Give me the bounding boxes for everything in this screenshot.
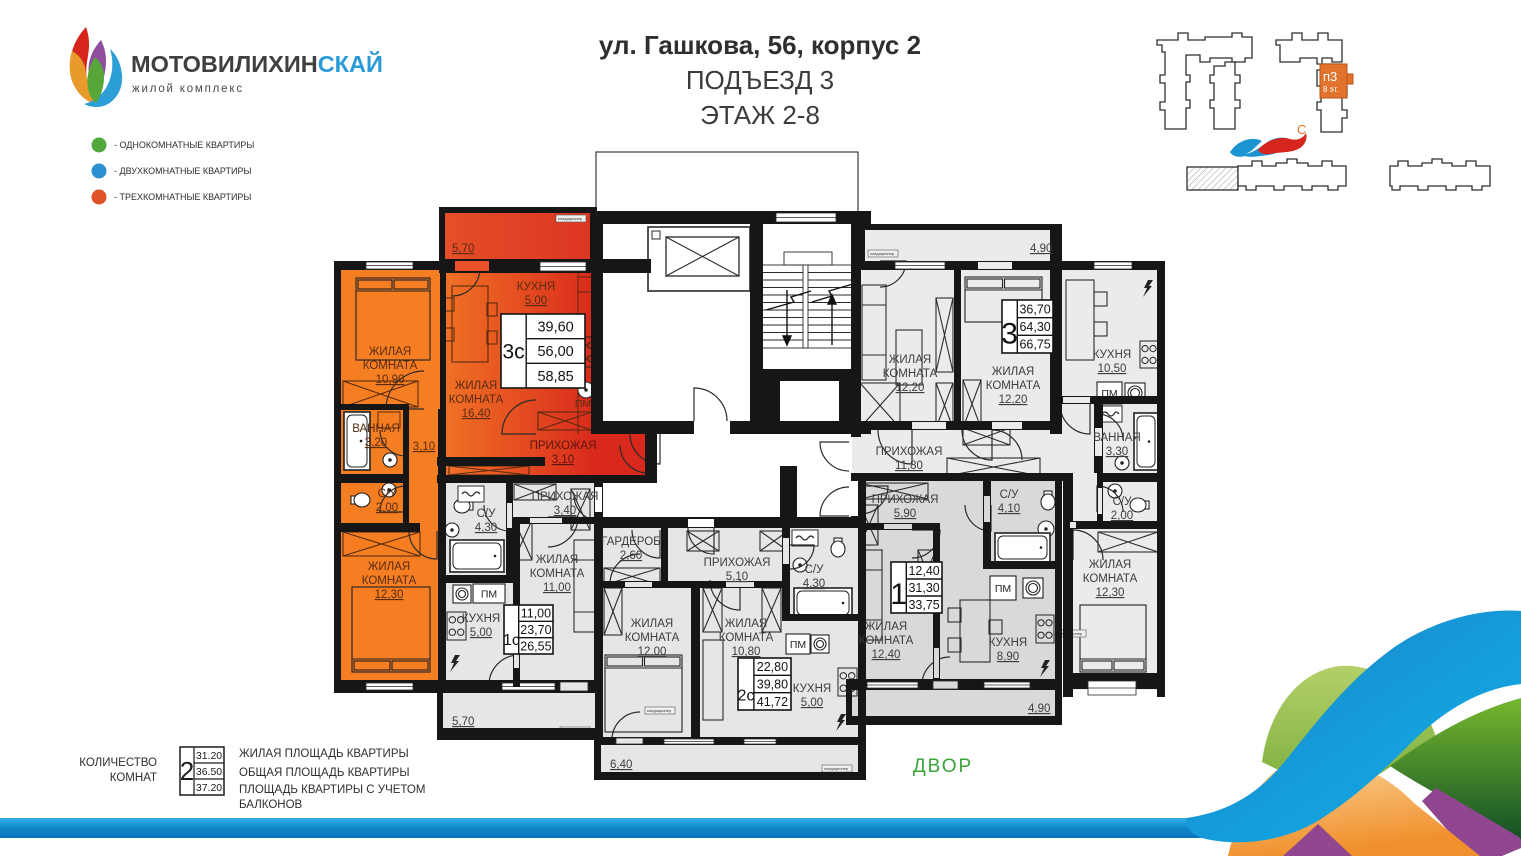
svg-text:4,90: 4,90 (1028, 703, 1050, 715)
svg-text:10,80: 10,80 (732, 646, 761, 658)
svg-text:37.20: 37.20 (196, 782, 222, 794)
svg-text:4,90: 4,90 (1030, 243, 1052, 255)
svg-text:КОМНАТА: КОМНАТА (530, 568, 585, 580)
svg-text:4,30: 4,30 (803, 578, 825, 590)
svg-text:3,30: 3,30 (1106, 446, 1128, 458)
svg-text:12,30: 12,30 (375, 589, 404, 601)
svg-text:3: 3 (1001, 318, 1018, 351)
svg-text:КУХНЯ: КУХНЯ (1093, 349, 1131, 361)
svg-text:4,30: 4,30 (475, 522, 497, 534)
svg-text:С: С (1297, 122, 1306, 137)
svg-text:5,70: 5,70 (452, 716, 474, 728)
svg-text:КОМНАТА: КОМНАТА (363, 360, 418, 372)
svg-text:ВАННАЯ: ВАННАЯ (1093, 432, 1141, 444)
svg-text:5,00: 5,00 (801, 697, 823, 709)
svg-text:ЖИЛАЯ: ЖИЛАЯ (992, 366, 1034, 378)
svg-text:КОМНАТА: КОМНАТА (883, 368, 938, 380)
svg-text:ЖИЛАЯ ПЛОЩАДЬ КВАРТИРЫ: ЖИЛАЯ ПЛОЩАДЬ КВАРТИРЫ (239, 748, 409, 760)
svg-text:ЖИЛАЯ: ЖИЛАЯ (725, 618, 767, 630)
svg-text:КОМНАТА: КОМНАТА (859, 635, 914, 647)
svg-text:3,10: 3,10 (552, 454, 574, 466)
svg-text:66,75: 66,75 (1019, 338, 1050, 352)
svg-text:36.50: 36.50 (196, 766, 222, 778)
svg-text:2: 2 (180, 756, 194, 786)
svg-text:3,40: 3,40 (554, 505, 576, 517)
svg-text:2с: 2с (738, 688, 755, 705)
svg-text:12,30: 12,30 (1096, 587, 1125, 599)
svg-text:п3: п3 (1323, 69, 1337, 84)
svg-text:12,40: 12,40 (872, 649, 901, 661)
svg-text:КУХНЯ: КУХНЯ (989, 637, 1027, 649)
svg-text:22,80: 22,80 (757, 660, 788, 674)
svg-text:КОЛИЧЕСТВО: КОЛИЧЕСТВО (79, 757, 157, 769)
svg-text:КОМНАТА: КОМНАТА (986, 380, 1041, 392)
svg-text:КОМНАТА: КОМНАТА (449, 394, 504, 406)
svg-text:- ТРЕХКОМНАТНЫЕ КВАРТИРЫ: - ТРЕХКОМНАТНЫЕ КВАРТИРЫ (114, 192, 251, 202)
svg-text:2,60: 2,60 (620, 550, 642, 562)
svg-text:11,00: 11,00 (543, 582, 571, 594)
svg-text:ОБЩАЯ ПЛОЩАДЬ КВАРТИРЫ: ОБЩАЯ ПЛОЩАДЬ КВАРТИРЫ (239, 767, 410, 779)
svg-text:ПМ: ПМ (995, 583, 1011, 595)
svg-text:- ОДНОКОМНАТНЫЕ КВАРТИРЫ: - ОДНОКОМНАТНЫЕ КВАРТИРЫ (114, 140, 254, 150)
svg-text:23,70: 23,70 (520, 623, 551, 637)
svg-text:ВАННАЯ: ВАННАЯ (352, 423, 400, 435)
svg-text:кондиционер: кондиционер (870, 251, 895, 256)
svg-text:3,20: 3,20 (365, 437, 387, 449)
svg-text:8 эт.: 8 эт. (1323, 85, 1339, 94)
svg-text:С/У: С/У (805, 564, 825, 576)
svg-text:31,30: 31,30 (908, 581, 939, 595)
svg-text:5,70: 5,70 (452, 243, 474, 255)
svg-text:6,40: 6,40 (610, 759, 632, 771)
svg-text:КУХНЯ: КУХНЯ (462, 613, 500, 625)
svg-text:кондиционер: кондиционер (824, 766, 849, 771)
svg-text:ЖИЛАЯ: ЖИЛАЯ (865, 621, 907, 633)
svg-text:39,80: 39,80 (757, 678, 788, 692)
svg-text:ЭТАЖ 2-8: ЭТАЖ 2-8 (700, 100, 820, 130)
svg-text:12,40: 12,40 (908, 564, 939, 578)
svg-text:ПМ: ПМ (481, 588, 497, 600)
svg-text:КОМНАТА: КОМНАТА (719, 632, 774, 644)
svg-text:3,10: 3,10 (413, 441, 435, 453)
svg-text:1: 1 (890, 578, 907, 611)
svg-text:БАЛКОНОВ: БАЛКОНОВ (239, 799, 303, 811)
svg-text:12,00: 12,00 (638, 646, 667, 658)
svg-text:ЖИЛАЯ: ЖИЛАЯ (536, 554, 578, 566)
svg-text:5,00: 5,00 (525, 295, 547, 307)
svg-text:ПРИХОЖАЯ: ПРИХОЖАЯ (530, 440, 597, 452)
svg-text:жилой комплекс: жилой комплекс (132, 83, 244, 95)
svg-text:64,30: 64,30 (1019, 320, 1050, 334)
svg-text:58,85: 58,85 (537, 369, 573, 385)
svg-text:ПОДЪЕЗД 3: ПОДЪЕЗД 3 (686, 65, 834, 95)
svg-text:26,55: 26,55 (520, 639, 551, 653)
svg-text:ПРИХОЖАЯ: ПРИХОЖАЯ (532, 491, 599, 503)
svg-text:кондиционер: кондиционер (558, 216, 583, 221)
svg-text:ПРИХОЖАЯ: ПРИХОЖАЯ (876, 446, 943, 458)
svg-text:5,00: 5,00 (470, 627, 492, 639)
svg-text:КОМНАТА: КОМНАТА (1083, 573, 1138, 585)
svg-text:4,10: 4,10 (998, 503, 1020, 515)
svg-text:12,20: 12,20 (896, 382, 925, 394)
svg-text:ЖИЛАЯ: ЖИЛАЯ (368, 561, 410, 573)
svg-text:12,20: 12,20 (999, 394, 1028, 406)
svg-text:10,90: 10,90 (376, 374, 405, 386)
svg-text:С/У: С/У (477, 508, 497, 520)
svg-text:41,72: 41,72 (757, 695, 788, 709)
svg-text:КОМНАТА: КОМНАТА (362, 575, 417, 587)
svg-text:ЖИЛАЯ: ЖИЛАЯ (631, 618, 673, 630)
svg-text:2,00: 2,00 (376, 502, 398, 514)
svg-text:1с: 1с (503, 632, 520, 649)
svg-text:КУХНЯ: КУХНЯ (793, 683, 831, 695)
svg-text:3с: 3с (503, 340, 525, 363)
svg-text:39,60: 39,60 (537, 320, 573, 336)
svg-text:С/У: С/У (1000, 489, 1020, 501)
svg-text:36,70: 36,70 (1019, 302, 1050, 316)
svg-text:МОТОВИЛИХИНСКАЙ: МОТОВИЛИХИНСКАЙ (131, 50, 383, 77)
svg-text:С/У: С/У (378, 488, 398, 500)
svg-text:2,00: 2,00 (1111, 510, 1133, 522)
svg-text:ЖИЛАЯ: ЖИЛАЯ (889, 354, 931, 366)
svg-text:ЖИЛАЯ: ЖИЛАЯ (369, 346, 411, 358)
svg-text:31.20: 31.20 (196, 750, 222, 762)
svg-text:ГАРДЕРОБ: ГАРДЕРОБ (601, 536, 660, 548)
svg-text:КОМНАТА: КОМНАТА (625, 632, 680, 644)
svg-text:11,80: 11,80 (895, 460, 923, 472)
svg-text:ПРИХОЖАЯ: ПРИХОЖАЯ (872, 494, 939, 506)
svg-text:11,00: 11,00 (521, 607, 551, 621)
svg-text:ул. Гашкова, 56, корпус 2: ул. Гашкова, 56, корпус 2 (599, 30, 921, 60)
svg-text:ДВОР: ДВОР (913, 756, 973, 777)
svg-text:ЖИЛАЯ: ЖИЛАЯ (455, 380, 497, 392)
svg-text:С/У: С/У (1113, 496, 1133, 508)
svg-text:ПМ: ПМ (575, 398, 591, 410)
svg-text:кондиционер: кондиционер (647, 708, 672, 713)
svg-text:8,90: 8,90 (997, 651, 1019, 663)
svg-text:ПЛОЩАДЬ КВАРТИРЫ С УЧЕТОМ: ПЛОЩАДЬ КВАРТИРЫ С УЧЕТОМ (239, 784, 425, 796)
svg-text:ПРИХОЖАЯ: ПРИХОЖАЯ (704, 557, 771, 569)
svg-text:ПМ: ПМ (790, 639, 806, 651)
svg-text:16,40: 16,40 (462, 408, 491, 420)
svg-text:- ДВУХКОМНАТНЫЕ КВАРТИРЫ: - ДВУХКОМНАТНЫЕ КВАРТИРЫ (114, 166, 251, 176)
svg-text:10,50: 10,50 (1098, 363, 1127, 375)
svg-text:КОМНАТ: КОМНАТ (110, 772, 157, 784)
svg-text:33,75: 33,75 (908, 598, 939, 612)
svg-text:5,90: 5,90 (894, 508, 916, 520)
svg-text:ЖИЛАЯ: ЖИЛАЯ (1089, 559, 1131, 571)
svg-text:5,10: 5,10 (726, 571, 748, 583)
svg-text:56,00: 56,00 (537, 344, 573, 360)
svg-text:КУХНЯ: КУХНЯ (517, 281, 555, 293)
